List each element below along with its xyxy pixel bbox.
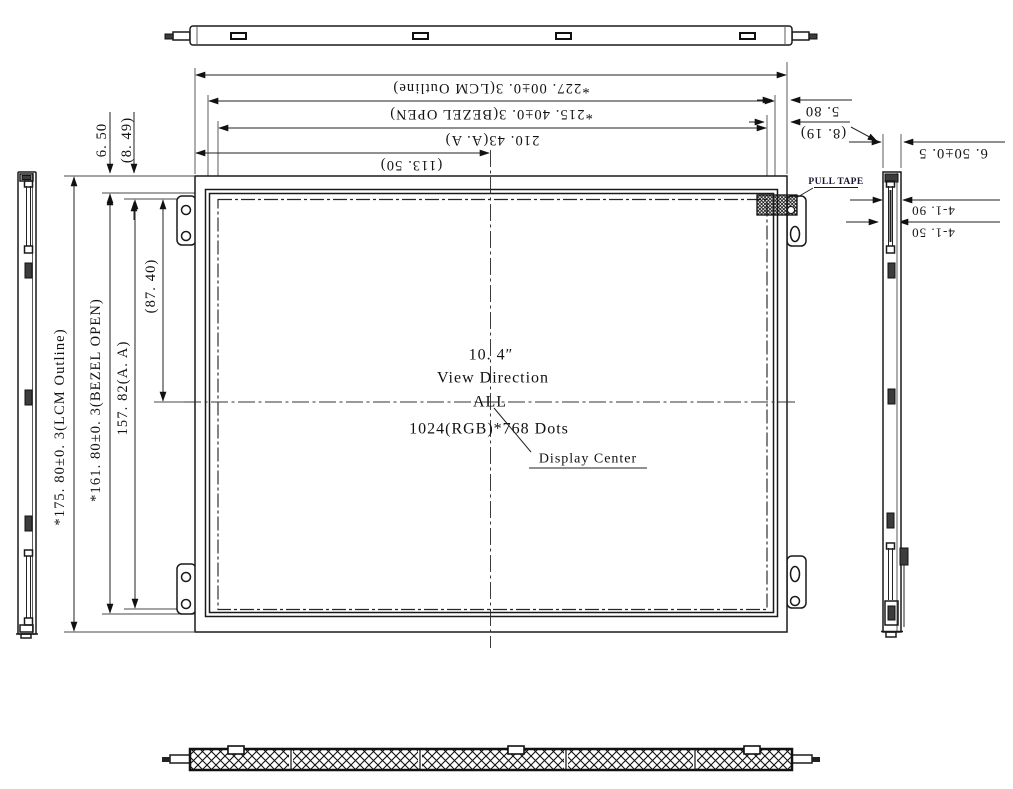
dim-label-center-y: (87. 40)	[143, 259, 159, 314]
top-edge-right-pin-tip	[809, 34, 817, 39]
top-edge-body	[190, 26, 792, 45]
left-side-latch	[25, 516, 32, 531]
top-edge-left-pin	[173, 32, 190, 40]
panel-size-label: 10. 4″	[469, 347, 514, 364]
pull-tape-label: PULL TAPE	[808, 177, 863, 187]
dim-label-aa-edge-offset: (8. 19)	[800, 125, 846, 141]
right-side-view: 6. 50±0. 5 4-1. 90 4-1. 50	[846, 134, 1005, 637]
dim-label-feature-b: 4-1. 50	[911, 226, 955, 241]
top-edge-right-pin	[792, 32, 809, 40]
dim-label-feature-a: 4-1. 90	[911, 204, 955, 219]
bottom-edge-body	[190, 749, 792, 770]
dim-label-aa-top-offset: (8. 49)	[119, 117, 135, 163]
bottom-edge-right-pin-tip	[812, 757, 820, 762]
view-direction-value: ALL	[473, 394, 507, 411]
dim-label-thickness: 6. 50±0. 5	[918, 145, 988, 161]
right-side-latch	[888, 389, 895, 404]
resolution-label: 1024(RGB)*768 Dots	[409, 421, 569, 438]
bottom-edge-view	[162, 746, 820, 770]
bottom-edge-right-pin	[792, 755, 812, 763]
display-center-label: Display Center	[539, 452, 637, 467]
left-dimensions: *175. 80±0. 3(LCM Outline) *161. 80±0. 3…	[52, 112, 217, 632]
mounting-bracket-top-left	[177, 196, 196, 245]
bottom-edge-left-pin-tip	[162, 757, 170, 762]
mounting-bracket-bottom-left	[177, 564, 196, 614]
dim-label-bezel-width: *215. 40±0. 3(BEZEL OPEN)	[389, 106, 593, 122]
right-side-latch	[887, 513, 894, 528]
dim-label-aa-height: 157. 82(A. A)	[115, 341, 131, 436]
dim-label-aa-width: 210. 43(A. A)	[445, 132, 540, 148]
right-dimensions: 5. 80 (8. 19)	[749, 100, 877, 141]
right-side-connector	[900, 548, 908, 565]
mounting-bracket-bottom-right	[787, 556, 806, 608]
top-edge-left-pin-tip	[165, 34, 173, 39]
lcd-outline-drawing: *227. 00±0. 3(LCM Outline) *215. 40±0. 3…	[0, 0, 1013, 789]
left-side-view	[16, 172, 38, 638]
dim-label-center-x: (113. 50)	[380, 157, 443, 173]
dim-label-bezel-height: *161. 80±0. 3(BEZEL OPEN)	[88, 298, 104, 502]
dim-label-bezel-edge-offset: 5. 80	[805, 103, 840, 119]
top-edge-view	[165, 26, 817, 45]
left-side-latch	[25, 390, 32, 405]
front-view: PULL TAPE 10. 4″ View Direction ALL 1024…	[177, 150, 864, 648]
bottom-edge-left-pin	[170, 755, 190, 763]
lcd-outline-drawing-page: *227. 00±0. 3(LCM Outline) *215. 40±0. 3…	[0, 0, 1013, 789]
thickness-connector-leader	[851, 127, 877, 141]
dim-label-bezel-top-offset: 6. 50	[94, 123, 110, 158]
right-side-latch	[888, 263, 895, 278]
view-direction-label: View Direction	[437, 370, 549, 387]
left-side-latch	[25, 263, 32, 278]
dim-label-lcm-width: *227. 00±0. 3(LCM Outline)	[392, 80, 589, 96]
pull-tape-grommet	[788, 207, 795, 214]
dim-label-lcm-height: *175. 80±0. 3(LCM Outline)	[52, 328, 68, 525]
